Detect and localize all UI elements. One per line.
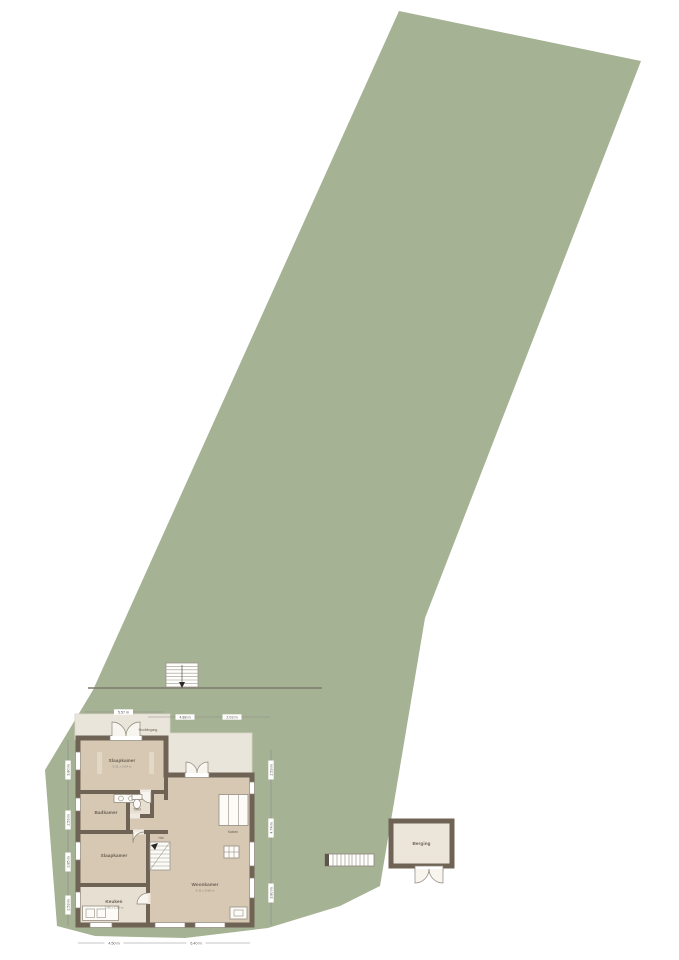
dim-label-left-2: 2.53 m bbox=[65, 811, 70, 830]
dim-label-top-3: 2.03 m bbox=[223, 714, 242, 719]
svg-text:3.80 m: 3.80 m bbox=[269, 887, 273, 898]
dim-label-left-1: 3.80 m bbox=[65, 761, 70, 780]
svg-text:4.50 m: 4.50 m bbox=[108, 941, 119, 945]
appliance-block bbox=[224, 846, 239, 858]
outbuilding-door-left bbox=[415, 869, 429, 883]
svg-text:3.80 m: 3.80 m bbox=[66, 764, 70, 775]
svg-text:5.57 m: 5.57 m bbox=[118, 710, 129, 714]
site-plan-svg: Hoofdingang Slaapkamer 5.31 x 3.04 m Bad… bbox=[0, 0, 679, 960]
floor-plan-canvas: Hoofdingang Slaapkamer 5.31 x 3.04 m Bad… bbox=[0, 0, 679, 960]
radiator-left bbox=[97, 752, 102, 774]
room-size-woonkamer: 6.31 x 5.68 m bbox=[196, 889, 215, 893]
room-label-kasten: Kasten bbox=[228, 830, 238, 834]
svg-text:6.40 m: 6.40 m bbox=[190, 941, 201, 945]
radiator-right bbox=[149, 752, 154, 774]
door-opening-toilet bbox=[130, 814, 140, 819]
outbuilding: Berging bbox=[391, 821, 452, 883]
dim-label-left-4: 2.53 m bbox=[65, 896, 70, 915]
dim-label-right-3: 3.80 m bbox=[268, 884, 273, 903]
garden-stairs bbox=[166, 663, 198, 688]
dim-label-top-2: 4.88 m bbox=[176, 714, 195, 719]
indoor-stairs bbox=[150, 842, 170, 870]
hearth-fixture bbox=[230, 907, 247, 919]
dim-label-left-3: 2.85 m bbox=[65, 853, 70, 872]
room-label-badkamer: Badkamer bbox=[94, 810, 117, 815]
room-label-hal: Hal bbox=[159, 836, 164, 840]
dim-label-bottom-1: 4.50 m bbox=[105, 940, 124, 945]
room-label-slaapkamer-1: Slaapkamer bbox=[109, 758, 136, 763]
outbuilding-door-right bbox=[429, 869, 443, 883]
dim-label-right-1: 2.53 m bbox=[268, 761, 273, 780]
svg-text:4.74 m: 4.74 m bbox=[269, 822, 273, 833]
room-size-slaapkamer-1: 5.31 x 3.04 m bbox=[113, 765, 132, 769]
room-label-woonkamer: Woonkamer bbox=[191, 882, 218, 887]
kasten-cabinet bbox=[219, 795, 248, 826]
entrance-label: Hoofdingang bbox=[139, 728, 158, 732]
dim-label-right-2: 4.74 m bbox=[268, 819, 273, 838]
svg-text:2.53 m: 2.53 m bbox=[66, 899, 70, 910]
dim-label-bottom-2: 6.40 m bbox=[187, 940, 206, 945]
room-label-toilet: Toilet bbox=[133, 808, 141, 812]
svg-text:2.53 m: 2.53 m bbox=[269, 764, 273, 775]
room-size-keuken: 3.92 x 2.28 m bbox=[105, 906, 124, 910]
room-label-slaapkamer-2: Slaapkamer bbox=[101, 853, 128, 858]
svg-text:2.53 m: 2.53 m bbox=[66, 814, 70, 825]
svg-text:2.85 m: 2.85 m bbox=[66, 856, 70, 867]
footbridge bbox=[325, 854, 374, 866]
svg-text:2.03 m: 2.03 m bbox=[226, 715, 237, 719]
svg-text:4.88 m: 4.88 m bbox=[179, 715, 190, 719]
outbuilding-label: Berging bbox=[412, 841, 430, 846]
dim-label-top-1: 5.57 m bbox=[114, 709, 133, 714]
room-label-keuken: Keuken bbox=[105, 899, 122, 904]
